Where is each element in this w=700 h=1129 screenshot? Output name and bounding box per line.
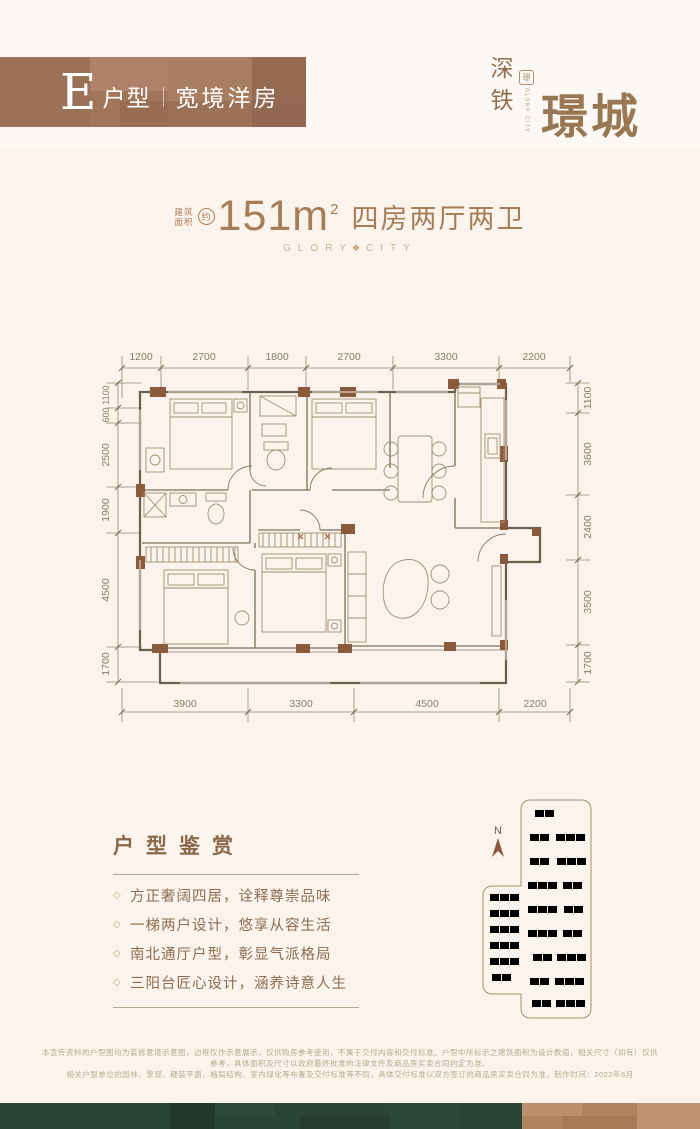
tagline-right: CITY xyxy=(366,243,417,254)
site-plan: N xyxy=(465,788,650,1033)
north-arrow-icon xyxy=(492,838,504,857)
highlighted-buildings xyxy=(490,894,519,981)
brand-logo: 深铁 璟 GLORY CITY 璟城 xyxy=(482,56,641,146)
dim-left: 2500 xyxy=(100,443,112,467)
footer-color-bar xyxy=(0,1103,700,1129)
brand-name-english: GLORY CITY xyxy=(524,88,530,134)
unit-letter: E xyxy=(60,67,97,117)
unit-spec: 建筑 面积 约 151m2 四房两厅两卫 xyxy=(0,192,700,241)
accent-marks xyxy=(298,534,330,539)
dim-right: 3600 xyxy=(582,442,594,466)
dim-left: 600 xyxy=(101,407,111,422)
brand-seal-icon: 璟 xyxy=(519,70,534,85)
footer-brown-block xyxy=(522,1103,700,1129)
disclaimer: 本宣传资料的户型图均为装修意境示意图，边框仅作示意展示，仅供购房参考使用，不属于… xyxy=(40,1047,660,1080)
dim-right: 2400 xyxy=(582,515,594,539)
list-item: ◇ 一梯两户设计，悠享从容生活 xyxy=(113,910,359,939)
unit-subtitle: 宽境洋房 xyxy=(176,79,280,113)
highlight-text: 南北通厅户型，彰显气派格局 xyxy=(130,943,332,964)
brand-tagline: GLORY❖CITY xyxy=(0,243,700,254)
interior-walls xyxy=(140,384,506,648)
approx-badge: 约 xyxy=(198,208,215,225)
exterior-walls xyxy=(140,384,540,683)
dim-left: 1900 xyxy=(100,498,112,522)
disclaimer-line: 本宣传资料的户型图均为装修意境示意图，边框仅作示意展示，仅供购房参考使用，不属于… xyxy=(40,1047,660,1069)
color-patch xyxy=(522,1103,582,1116)
brand-logo-middle: 璟 GLORY CITY xyxy=(519,56,534,146)
dim-left: 1100 xyxy=(101,385,111,404)
unit-label: 户型 xyxy=(103,79,151,113)
dim-bottom: 3900 xyxy=(173,698,197,710)
area-label: 建筑 面积 xyxy=(175,207,194,227)
area-superscript: 2 xyxy=(330,201,338,218)
list-item: ◇ 南北通厅户型，彰显气派格局 xyxy=(113,939,359,968)
unit-title: E 户型 宽境洋房 xyxy=(60,57,280,127)
dim-left: 1700 xyxy=(100,652,112,676)
color-patch xyxy=(215,1103,275,1116)
dim-top: 2200 xyxy=(522,351,546,363)
highlight-text: 方正奢阔四居，诠释尊崇品味 xyxy=(130,885,332,906)
color-patch xyxy=(562,1116,637,1129)
disclaimer-line: 相关户型单位的园林、景观、硬装平面、格局结构、室内绿化等布置及交付标准等不同，具… xyxy=(40,1069,660,1080)
tagline-left: GLORY xyxy=(283,243,353,254)
dim-bottom: 4500 xyxy=(415,698,439,710)
area-label-top: 建筑 xyxy=(175,207,194,217)
brand-name-main: 璟城 xyxy=(541,78,641,146)
divider-line xyxy=(113,874,359,875)
diamond-bullet-icon: ◇ xyxy=(113,890,130,901)
north-label: N xyxy=(494,825,502,837)
building-footprints xyxy=(528,810,586,1007)
dim-left: 4500 xyxy=(100,578,112,602)
diamond-bullet-icon: ◇ xyxy=(113,977,130,988)
dim-bottom: 2200 xyxy=(523,698,547,710)
color-patch xyxy=(300,1116,390,1129)
dim-top: 1200 xyxy=(129,351,153,363)
dimension-ticks xyxy=(115,365,581,715)
area-value: 151m2 xyxy=(218,192,338,241)
dim-top: 1800 xyxy=(265,351,289,363)
dim-top: 3300 xyxy=(434,351,458,363)
room-configuration: 四房两厅两卫 xyxy=(351,197,525,236)
highlights-section: 户型鉴赏 ◇ 方正奢阔四居，诠释尊崇品味 ◇ 一梯两户设计，悠享从容生活 ◇ 南… xyxy=(113,830,359,1014)
area-label-bottom: 面积 xyxy=(175,217,194,227)
dim-right: 1700 xyxy=(582,651,594,675)
dim-top: 2700 xyxy=(192,351,216,363)
diamond-bullet-icon: ◇ xyxy=(113,919,130,930)
highlight-text: 三阳台匠心设计，涵养诗意人生 xyxy=(130,972,347,993)
floorplan-poster: E 户型 宽境洋房 深铁 璟 GLORY CITY 璟城 建筑 面积 约 151… xyxy=(0,0,700,1129)
dim-right: 3500 xyxy=(582,590,594,614)
floorplan-drawing: 1200 2700 1800 2700 3300 2200 3900 3300 … xyxy=(90,330,625,745)
list-item: ◇ 方正奢阔四居，诠释尊崇品味 xyxy=(113,881,359,910)
color-patch xyxy=(637,1103,700,1129)
dimension-lines xyxy=(106,356,590,722)
furniture xyxy=(144,387,504,644)
highlight-text: 一梯两户设计，悠享从容生活 xyxy=(130,914,332,935)
dim-bottom: 3300 xyxy=(289,698,313,710)
dim-top: 2700 xyxy=(337,351,361,363)
diamond-icon: ❖ xyxy=(352,243,360,253)
diamond-bullet-icon: ◇ xyxy=(113,948,130,959)
unit-title-banner: E 户型 宽境洋房 xyxy=(0,57,306,127)
divider-line xyxy=(113,1007,359,1008)
footer-green-block xyxy=(0,1103,522,1129)
color-patch xyxy=(170,1103,215,1129)
highlights-title: 户型鉴赏 xyxy=(113,830,359,860)
brand-name-vertical: 深铁 xyxy=(482,56,516,134)
title-divider xyxy=(163,87,164,107)
dim-right: 1100 xyxy=(582,387,594,410)
color-patch xyxy=(390,1103,460,1129)
wall-piers xyxy=(136,379,540,653)
list-item: ◇ 三阳台匠心设计，涵养诗意人生 xyxy=(113,968,359,997)
